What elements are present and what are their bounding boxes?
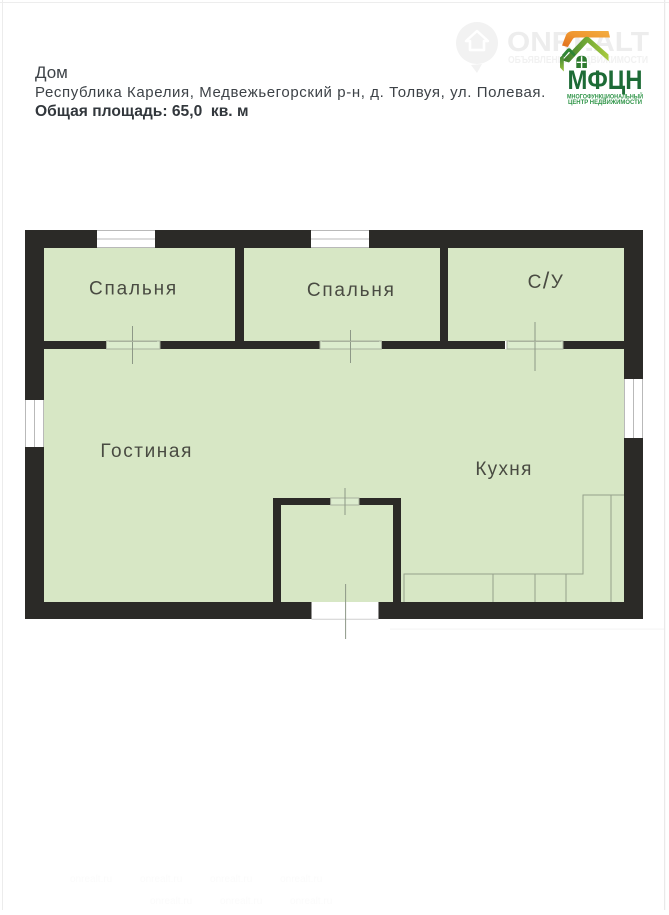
svg-text:Кухня: Кухня <box>475 459 532 480</box>
svg-text:Дом: Дом <box>35 63 68 82</box>
svg-text:ЦЕНТР НЕДВИЖИМОСТИ: ЦЕНТР НЕДВИЖИМОСТИ <box>568 99 642 106</box>
svg-text:Спальня: Спальня <box>307 280 396 301</box>
svg-text:onrealt.ru onrealt.ru: onrealt.ru onrealt.ru onrealt.ru <box>150 896 332 907</box>
svg-text:МФЦН: МФЦН <box>568 65 643 95</box>
svg-text:Спальня: Спальня <box>89 279 178 300</box>
svg-text:С/У: С/У <box>528 268 565 294</box>
svg-text:onrealt.ru onrealt.ru: onrealt.ru onrealt.ru onrealt.ru onrealt… <box>70 874 322 885</box>
svg-text:Республика Карелия, Медвежьего: Республика Карелия, Медвежьегорский р-н,… <box>35 84 546 101</box>
svg-text:Гостиная: Гостиная <box>100 441 193 462</box>
svg-text:Общая площадь: 65,0 кв. м: Общая площадь: 65,0 кв. м <box>35 103 249 120</box>
